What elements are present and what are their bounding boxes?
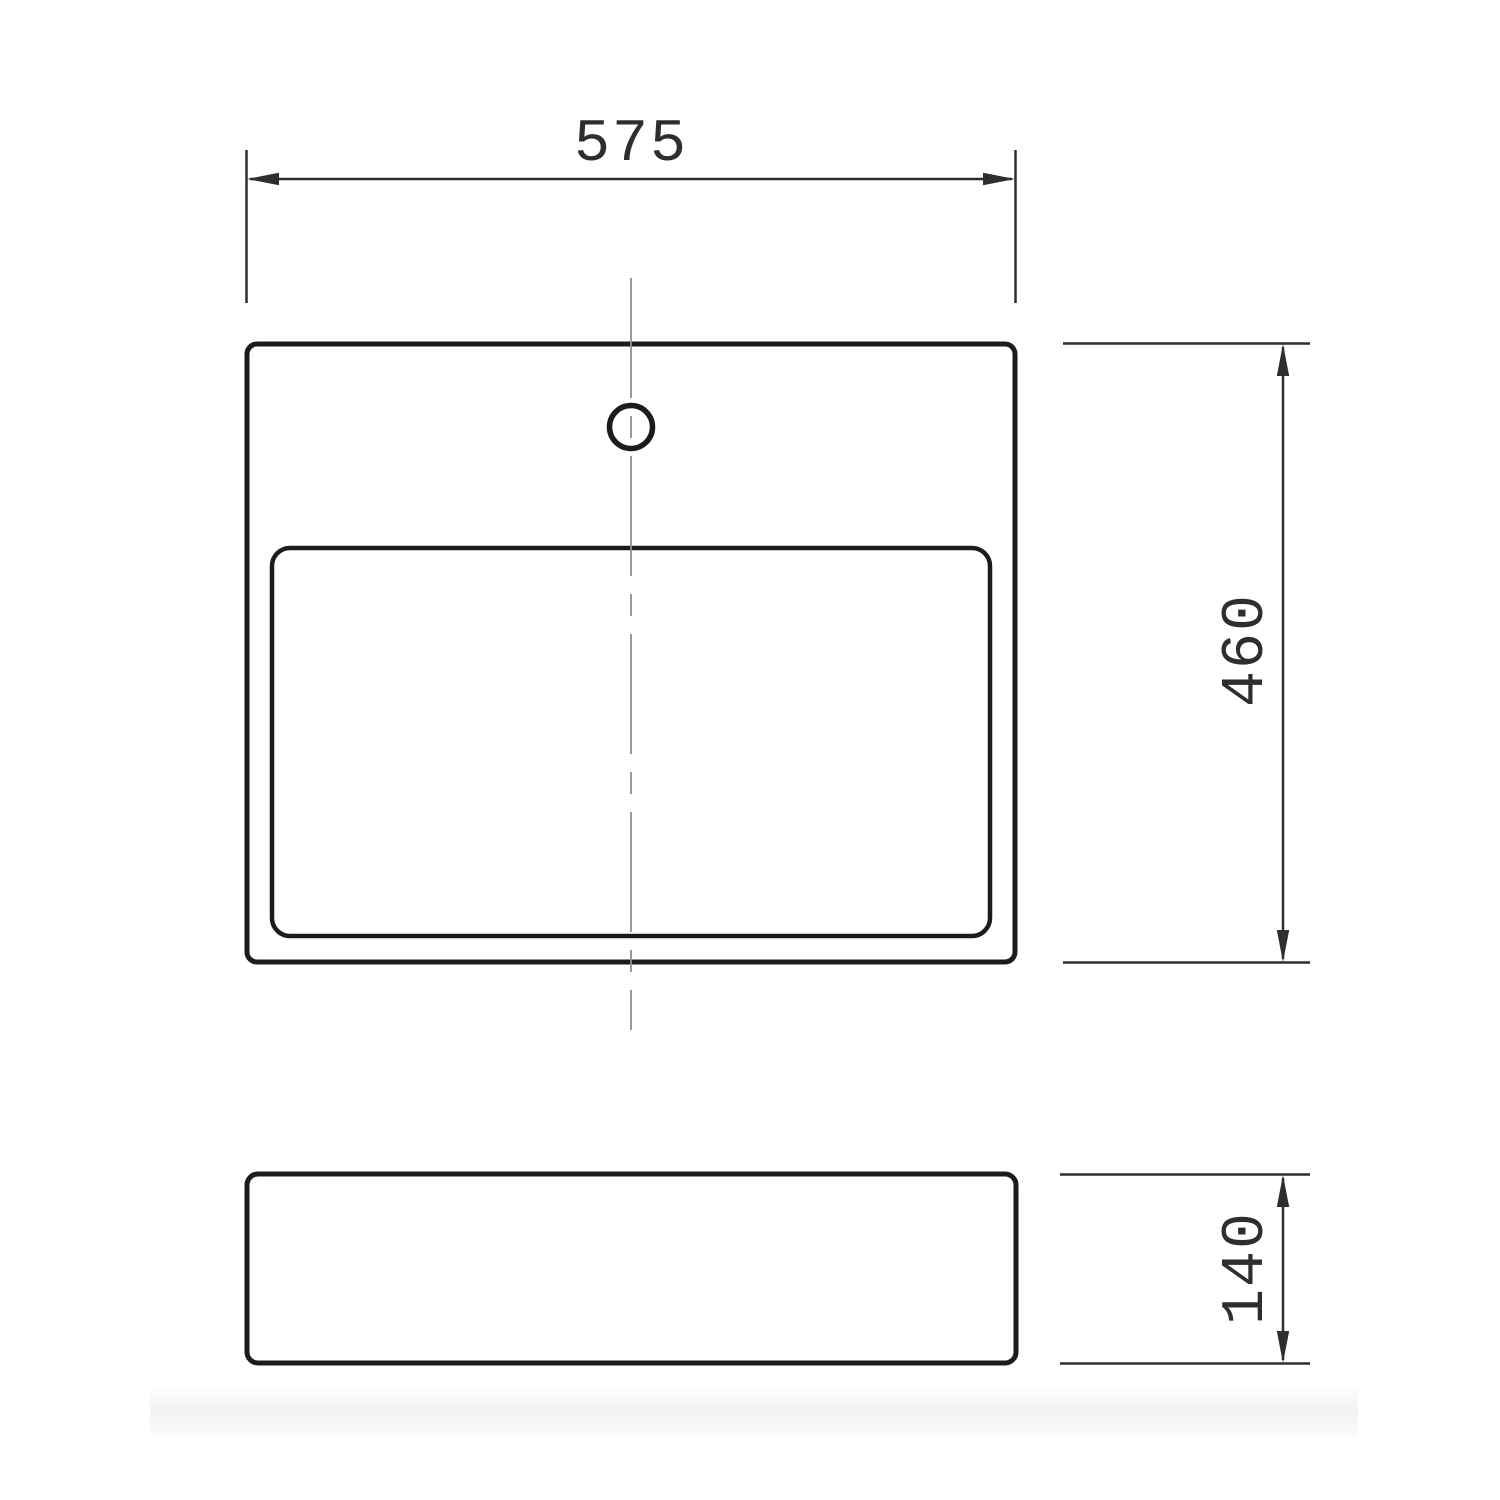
drawing-canvas: 575 460 140: [0, 0, 1500, 1500]
height-arrowhead-bottom: [1277, 1331, 1289, 1363]
photo-shadow-band: [150, 1388, 1358, 1436]
depth-arrowhead-bottom: [1277, 930, 1289, 962]
width-arrowhead-right: [983, 173, 1015, 185]
depth-dimension-label: 460: [1213, 593, 1281, 707]
side-view-outline: [247, 1174, 1016, 1363]
technical-drawing-page: 575 460 140: [0, 0, 1500, 1500]
width-dimension-label: 575: [574, 111, 688, 179]
height-dimension-label: 140: [1213, 1211, 1281, 1325]
width-arrowhead-left: [247, 173, 279, 185]
depth-arrowhead-top: [1277, 344, 1289, 376]
height-arrowhead-top: [1277, 1175, 1289, 1207]
